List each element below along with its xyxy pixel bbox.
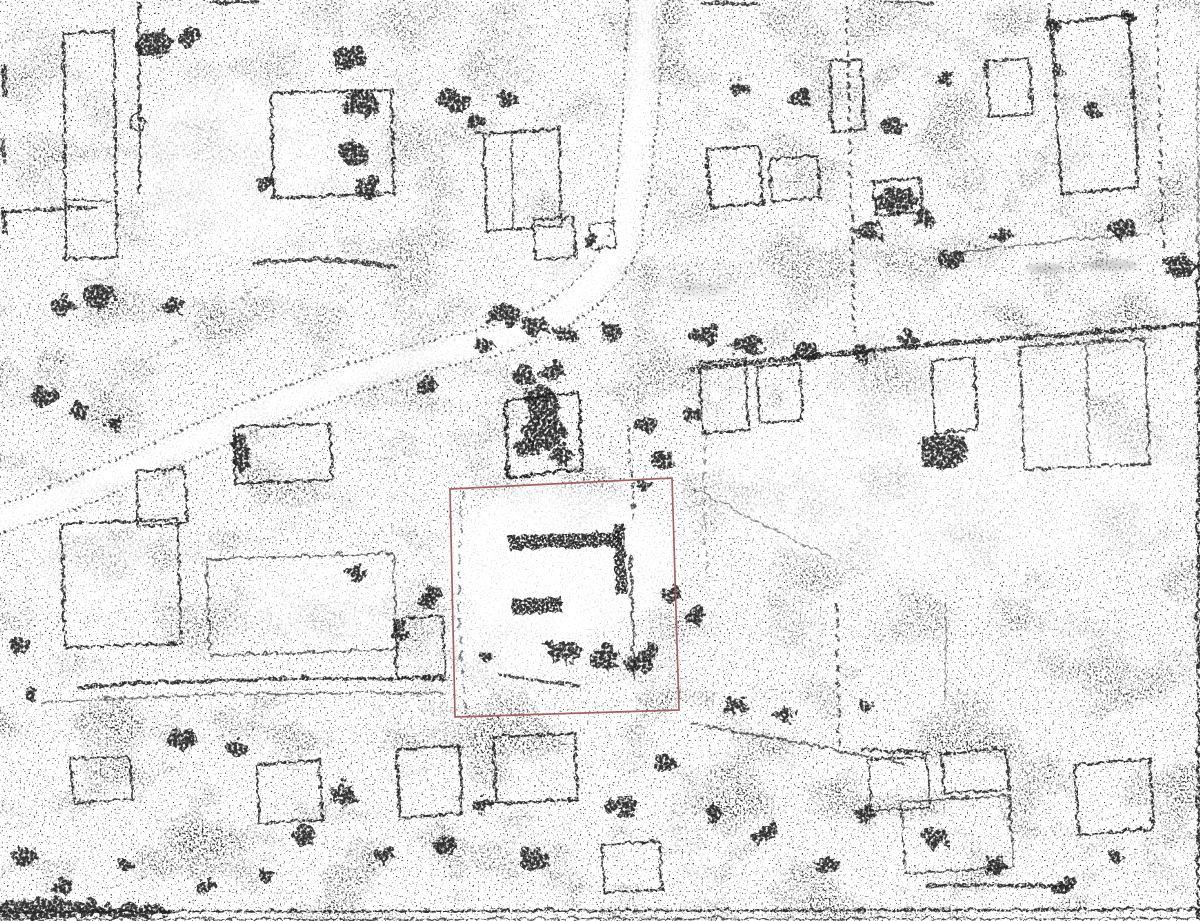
vegetation-blob bbox=[22, 686, 38, 698]
vegetation-blob bbox=[702, 804, 722, 820]
vegetation-blob bbox=[931, 70, 949, 84]
illegible-smudge bbox=[670, 282, 730, 298]
vegetation-blob bbox=[852, 222, 878, 242]
vegetation-blob bbox=[462, 112, 482, 128]
vegetation-blob bbox=[483, 301, 517, 323]
vegetation-blob bbox=[52, 874, 72, 890]
vegetation-blob bbox=[220, 737, 244, 755]
illegible-smudge bbox=[1086, 259, 1138, 271]
noise-dense-region bbox=[930, 170, 1200, 340]
vegetation-blob bbox=[878, 113, 902, 131]
field-clearing bbox=[140, 80, 330, 250]
vegetation-blob bbox=[510, 436, 538, 456]
field-clearing bbox=[30, 510, 150, 610]
vegetation-blob bbox=[254, 866, 270, 878]
vegetation-blob bbox=[599, 323, 617, 337]
field-clearing bbox=[520, 220, 640, 300]
vegetation-blob bbox=[78, 280, 112, 304]
vegetation-blob bbox=[548, 443, 572, 461]
vegetation-blob bbox=[854, 696, 870, 708]
vegetation-blob bbox=[65, 399, 87, 415]
frame-border-right bbox=[1196, 64, 1197, 250]
field-clearing bbox=[250, 555, 410, 645]
vegetation-blob bbox=[810, 853, 834, 871]
vegetation-blob bbox=[428, 833, 452, 851]
vegetation-blob bbox=[8, 843, 32, 861]
scanned-aerial-photo-page bbox=[0, 0, 1200, 921]
edge-mark bbox=[2, 64, 4, 96]
vegetation-blob bbox=[326, 782, 354, 802]
vegetation-blob bbox=[469, 334, 491, 350]
vegetation-blob bbox=[470, 794, 490, 810]
vegetation-blob bbox=[632, 476, 648, 488]
noise-dense-region bbox=[0, 690, 1200, 915]
vegetation-blob bbox=[288, 823, 312, 841]
plot-building-wall bbox=[509, 595, 562, 613]
edge-mark bbox=[700, 1, 758, 3]
vegetation-blob bbox=[372, 844, 392, 860]
vegetation-blob bbox=[650, 753, 674, 771]
vegetation-blob bbox=[335, 139, 365, 161]
vegetation-blob bbox=[494, 87, 516, 103]
vegetation-blob bbox=[1162, 250, 1194, 274]
vegetation-blob bbox=[342, 563, 362, 577]
vegetation-blob bbox=[422, 586, 438, 598]
vegetation-blob bbox=[649, 448, 671, 466]
aerial-photograph bbox=[0, 0, 1200, 921]
vegetation-blob bbox=[26, 386, 54, 406]
vegetation-blob bbox=[413, 374, 435, 390]
vegetation-blob bbox=[873, 183, 913, 209]
vegetation-blob bbox=[329, 43, 361, 67]
vegetation-blob bbox=[725, 77, 745, 93]
edge-mark bbox=[878, 0, 932, 2]
vegetation-blob bbox=[916, 430, 964, 464]
vegetation-blob bbox=[679, 405, 697, 419]
vegetation-blob bbox=[936, 247, 960, 265]
vegetation-blob bbox=[506, 362, 534, 382]
vegetation-blob bbox=[720, 694, 744, 710]
vegetation-blob bbox=[433, 86, 467, 108]
vegetation-blob bbox=[1080, 99, 1100, 115]
edge-mark bbox=[208, 0, 258, 2]
vegetation-blob bbox=[686, 322, 714, 342]
illegible-smudge bbox=[1025, 263, 1065, 273]
vegetation-blob bbox=[606, 792, 634, 812]
vegetation-blob bbox=[990, 224, 1010, 240]
vegetation-blob bbox=[729, 331, 761, 353]
vegetation-blob bbox=[130, 26, 170, 54]
field-clearing bbox=[700, 385, 1180, 575]
vegetation-blob bbox=[584, 645, 616, 665]
vegetation-blob bbox=[772, 705, 792, 719]
noise-dense-region bbox=[650, 0, 1200, 140]
vegetation-blob bbox=[114, 856, 130, 868]
vegetation-blob bbox=[516, 846, 544, 866]
vegetation-blob bbox=[174, 24, 200, 44]
vegetation-blob bbox=[542, 637, 578, 659]
vegetation-blob bbox=[388, 621, 408, 635]
vegetation-blob bbox=[159, 294, 181, 310]
vegetation-blob bbox=[749, 822, 775, 842]
vegetation-blob bbox=[517, 312, 547, 332]
vegetation-blob bbox=[475, 646, 491, 658]
vegetation-blob bbox=[896, 330, 916, 344]
edge-mark bbox=[1, 138, 3, 162]
vegetation-blob bbox=[919, 826, 945, 846]
vegetation-blob bbox=[90, 901, 170, 915]
vegetation-blob bbox=[166, 726, 194, 746]
vegetation-blob bbox=[658, 585, 676, 599]
vegetation-blob bbox=[524, 396, 556, 420]
vegetation-blob bbox=[638, 640, 658, 656]
vegetation-blob bbox=[5, 634, 25, 650]
edge-mark bbox=[1046, 3, 1048, 30]
edge-mark bbox=[2, 206, 4, 234]
vegetation-blob bbox=[784, 87, 806, 103]
vegetation-blob bbox=[251, 172, 273, 188]
vegetation-blob bbox=[47, 293, 73, 311]
vegetation-blob bbox=[103, 413, 121, 427]
vegetation-blob bbox=[635, 414, 655, 430]
vegetation-blob bbox=[192, 875, 212, 889]
vegetation-blob bbox=[537, 359, 561, 377]
vegetation-blob bbox=[1104, 846, 1120, 858]
frame-border-bottom-inner bbox=[0, 917, 1200, 918]
vegetation-blob bbox=[681, 604, 703, 620]
